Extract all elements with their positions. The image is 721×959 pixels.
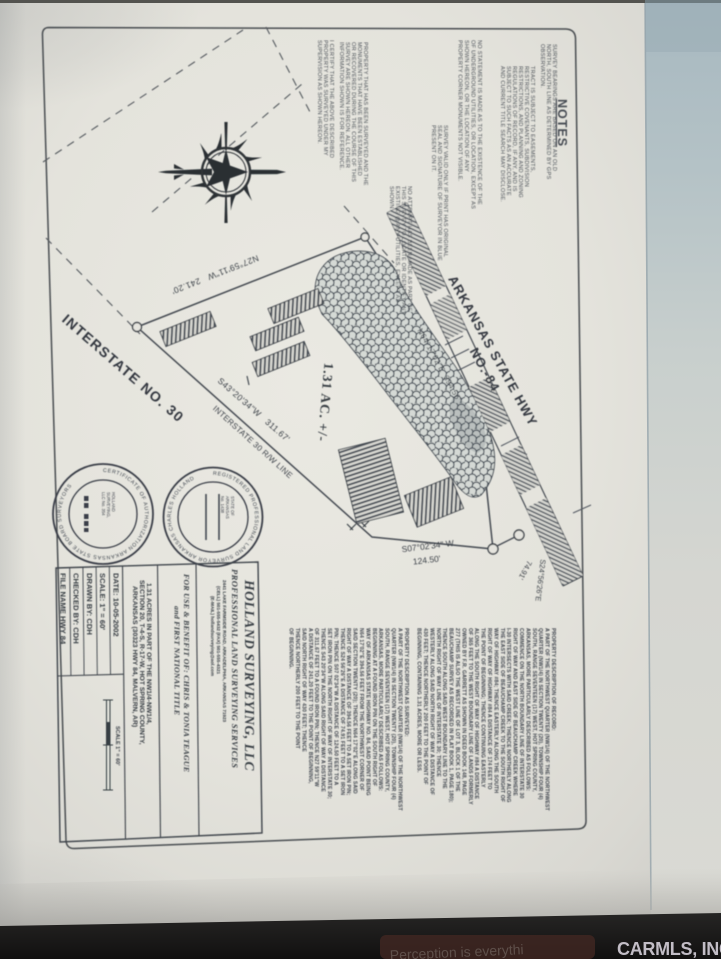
svg-text:RIGHT OF WAY AND EAST SIDE OF: RIGHT OF WAY AND EAST SIDE OF BEAUCHAMP … [512, 628, 518, 796]
svg-text:BEGINNING, CONTAINING 1.31 ACR: BEGINNING, CONTAINING 1.31 ACRES, MORE O… [416, 628, 422, 773]
svg-text:ALONG THE SOUTH RIGHT OF WAY O: ALONG THE SOUTH RIGHT OF WAY OF HIGHWAY … [473, 628, 479, 800]
svg-text:CARMLS, INC: CARMLS, INC [617, 939, 721, 959]
svg-text:HOLLAND SURVEYING, LLC: HOLLAND SURVEYING, LLC [242, 579, 257, 771]
svg-text:NORTH RIGHT OF WAY LINE OF INT: NORTH RIGHT OF WAY LINE OF INTERSTATE 30… [435, 628, 441, 777]
svg-text:RIGHT OF WAY A DISTANCE OF 394: RIGHT OF WAY A DISTANCE OF 394.56 FEET T… [345, 628, 351, 795]
svg-text:1.31 ACRES IN PART OF THE NW1/: 1.31 ACRES IN PART OF THE NW1/4-NW1/4, [145, 583, 152, 725]
svg-text:THENCE S24 56'26"E A DISTANCE: THENCE S24 56'26"E A DISTANCE OF 74.91 F… [339, 628, 345, 795]
svg-text:RIGHT OF WAY OF HIGHWAY #84 A: RIGHT OF WAY OF HIGHWAY #84 A DISTANCE O… [486, 628, 492, 790]
svg-text:THENCE S43 20'34"W ALONG SAID: THENCE S43 20'34"W ALONG SAID RIGHT OF W… [320, 628, 326, 792]
svg-text:A PART OF THE NORTHWEST QUARTE: A PART OF THE NORTHWEST QUARTER (NW1/4) … [544, 628, 550, 812]
svg-text:SCALE 1" = 60': SCALE 1" = 60' [114, 726, 120, 766]
svg-text:WAY OF HIGHWAY #84; THENCE EAS: WAY OF HIGHWAY #84; THENCE EASTERLY ALON… [492, 628, 498, 793]
svg-text:ARKANSAS, MORE PARTICULARLY DE: ARKANSAS, MORE PARTICULARLY DESCRIBED AS… [377, 628, 383, 791]
svg-text:COMMENCE ON THE NORTH BOUNDARY: COMMENCE ON THE NORTH BOUNDARY LINE OF I… [518, 628, 524, 798]
svg-text:DATE: 10-05-2002: DATE: 10-05-2002 [111, 573, 120, 637]
svg-text:PROPERTY DESCRIPTION OF RECORD: PROPERTY DESCRIPTION OF RECORD: [550, 628, 556, 731]
svg-text:OWNED BY F.R. GARRETT AS SHOWN: OWNED BY F.R. GARRETT AS SHOWN IN DEED B… [460, 628, 466, 796]
svg-text:SET IRON PIN ON THE NORTH RIGH: SET IRON PIN ON THE NORTH RIGHT OF WAY O… [326, 628, 332, 799]
svg-text:No. 1438: No. 1438 [220, 496, 225, 514]
svg-text:OF 311.67 FEET TO A FOUND IRON: OF 311.67 FEET TO A FOUND IRON PIN; THEN… [313, 628, 319, 787]
svg-text:OF 365 FEET TO THE WEST BOUNDA: OF 365 FEET TO THE WEST BOUNDARY LINE OF… [467, 628, 473, 805]
svg-text:(CELL) 501-555-5432 (FAX) 501-: (CELL) 501-555-5432 (FAX) 501-555-4321 [216, 586, 221, 675]
svg-text:A DISTANCE OF 241.20 FEET TO T: A DISTANCE OF 241.20 FEET TO THE POINT O… [307, 628, 313, 784]
svg-text:PROPERTY CORNER MONUMENTS NOT: PROPERTY CORNER MONUMENTS NOT VISIBLE. [457, 40, 463, 182]
svg-text:CHECKED BY: CDH: CHECKED BY: CDH [72, 573, 81, 644]
svg-text:FILE NAME HWY 84: FILE NAME HWY 84 [59, 573, 68, 645]
svg-text:NO STATEMENT IS MADE AS TO THE: NO STATEMENT IS MADE AS TO THE EXISTENCE… [476, 40, 482, 205]
svg-text:PROFESSIONAL LAND SURVEYING SE: PROFESSIONAL LAND SURVEYING SERVICES [230, 569, 240, 768]
svg-text:SAID SECTION TWENTY (20); THEN: SAID SECTION TWENTY (20); THENCE N64 17'… [352, 628, 358, 794]
svg-text:277 (THIS IS ALSO THE WEST LIN: 277 (THIS IS ALSO THE WEST LINE OF LOT 3… [454, 628, 460, 792]
svg-text:and FIRST NATIONAL TITLE: and FIRST NATIONAL TITLE [173, 606, 182, 715]
svg-text:OF UNDERGROUND UTILITIES, OR L: OF UNDERGROUND UTILITIES, OR LOCATION, E… [470, 40, 476, 209]
svg-text:SAID NORTH RIGHT OF WAY 430 FE: SAID NORTH RIGHT OF WAY 430 FEET; THENCE [300, 628, 306, 752]
svg-text:430 FEET; THENCE NORTHERLY 200: 430 FEET; THENCE NORTHERLY 200 FEET TO T… [422, 628, 428, 785]
svg-text:OF BEGINNING.: OF BEGINNING. [288, 628, 294, 669]
svg-text:PROPERTY DESCRIPTION AS SURVEY: PROPERTY DESCRIPTION AS SURVEYED: [403, 628, 409, 737]
svg-text:QUARTER (NW1/4) IN SECTION TWE: QUARTER (NW1/4) IN SECTION TWENTY (20), … [390, 628, 396, 800]
svg-text:LLC No. 354: LLC No. 354 [101, 492, 106, 516]
svg-text:WAY OF ARKANSAS STATE HIGHWAY: WAY OF ARKANSAS STATE HIGHWAY NO. 84, SA… [364, 628, 370, 796]
svg-text:PIN; THENCE S07 02'34"W A DIST: PIN; THENCE S07 02'34"W A DISTANCE OF 12… [332, 628, 338, 786]
svg-text:SHOWN.: SHOWN. [388, 186, 394, 211]
svg-text:SHOWN HEREON, OR THE LOCATION: SHOWN HEREON, OR THE LOCATION OF ANY [463, 40, 469, 172]
svg-text:THENCE SOUTH ALONG SAID WEST B: THENCE SOUTH ALONG SAID WEST BOUNDARY LI… [441, 628, 447, 789]
svg-text:A PART OF THE NORTHWEST QUARTE: A PART OF THE NORTHWEST QUARTER (NW1/4) … [396, 628, 402, 812]
svg-text:ARKANSAS (30323 HWY 84, MALVER: ARKANSAS (30323 HWY 84, MALVERN, AR) [131, 586, 138, 727]
svg-text:SCALE: 1" = 60': SCALE: 1" = 60' [98, 573, 107, 630]
svg-text:INFORMATION SHOWN IS FOR REFER: INFORMATION SHOWN IS FOR REFERENCE. [338, 42, 344, 170]
svg-text:AND CURRENT TITLE SEARCH MAY D: AND CURRENT TITLE SEARCH MAY DISCLOSE. [499, 66, 505, 202]
svg-text:(E-MAIL) hollandsurveying@aol.: (E-MAIL) hollandsurveying@aol.com [210, 596, 215, 676]
svg-text:THE POINT OF BEGINNING; THENCE: THE POINT OF BEGINNING; THENCE CONTINUIN… [480, 628, 486, 788]
svg-text:2441 LAKE FARMSIDE ROAD, ARKAD: 2441 LAKE FARMSIDE ROAD, ARKADELPHIA, AR… [222, 580, 227, 723]
svg-text:THENCE NORTHERLY 200 FEET TO T: THENCE NORTHERLY 200 FEET TO THE POINT [294, 628, 300, 749]
svg-text:FOR USE & BENEFIT OF: CHRIS &: FOR USE & BENEFIT OF: CHRIS & TONIA TEAG… [182, 574, 191, 772]
svg-text:SOUTH, RANGE SEVENTEEN (17) WE: SOUTH, RANGE SEVENTEEN (17) WEST, HOT SP… [531, 628, 537, 792]
svg-text:SUPERVISION AS SHOWN HEREON.: SUPERVISION AS SHOWN HEREON. [316, 40, 322, 144]
svg-text:I-30 INTERSECTS WITH SAID CREE: I-30 INTERSECTS WITH SAID CREEK; THENCE … [505, 628, 511, 803]
svg-text:BEAUCHAMP SURVEY AS RECORDED I: BEAUCHAMP SURVEY AS RECORDED IN PLAT BOO… [448, 628, 454, 803]
svg-text:PRESENT ON IT.: PRESENT ON IT. [430, 125, 436, 172]
svg-text:SOUTH, RANGE SEVENTEEN (17) WE: SOUTH, RANGE SEVENTEEN (17) WEST, HOT SP… [384, 628, 390, 792]
svg-text:WESTERLY ALONG SAID NORTH RIGH: WESTERLY ALONG SAID NORTH RIGHT OF WAY A… [428, 628, 434, 795]
svg-text:THE EAST SIDE OF BEAUCHAMP CRE: THE EAST SIDE OF BEAUCHAMP CREEK TO THE … [499, 628, 505, 802]
svg-text:SECTION 20, T-4-S, R-17-W, HOT: SECTION 20, T-4-S, R-17-W, HOT SPRING CO… [138, 580, 145, 745]
svg-text:OBSERVATION.: OBSERVATION. [539, 44, 545, 88]
svg-text:QUARTER (NW1/4) IN SECTION TWE: QUARTER (NW1/4) IN SECTION TWENTY (20), … [537, 628, 543, 800]
svg-text:N64 17'02"E 394.56 FEET FROM T: N64 17'02"E 394.56 FEET FROM THE NORTHWE… [358, 628, 364, 791]
svg-text:BEGINNING AT A FOUND IRON PIN: BEGINNING AT A FOUND IRON PIN ON THE SOU… [371, 628, 377, 786]
svg-text:DRAWN BY: CDH: DRAWN BY: CDH [85, 573, 94, 635]
svg-text:ARKANSAS, MORE PARTICULARLY DE: ARKANSAS, MORE PARTICULARLY DESCRIBED AS… [524, 628, 530, 791]
